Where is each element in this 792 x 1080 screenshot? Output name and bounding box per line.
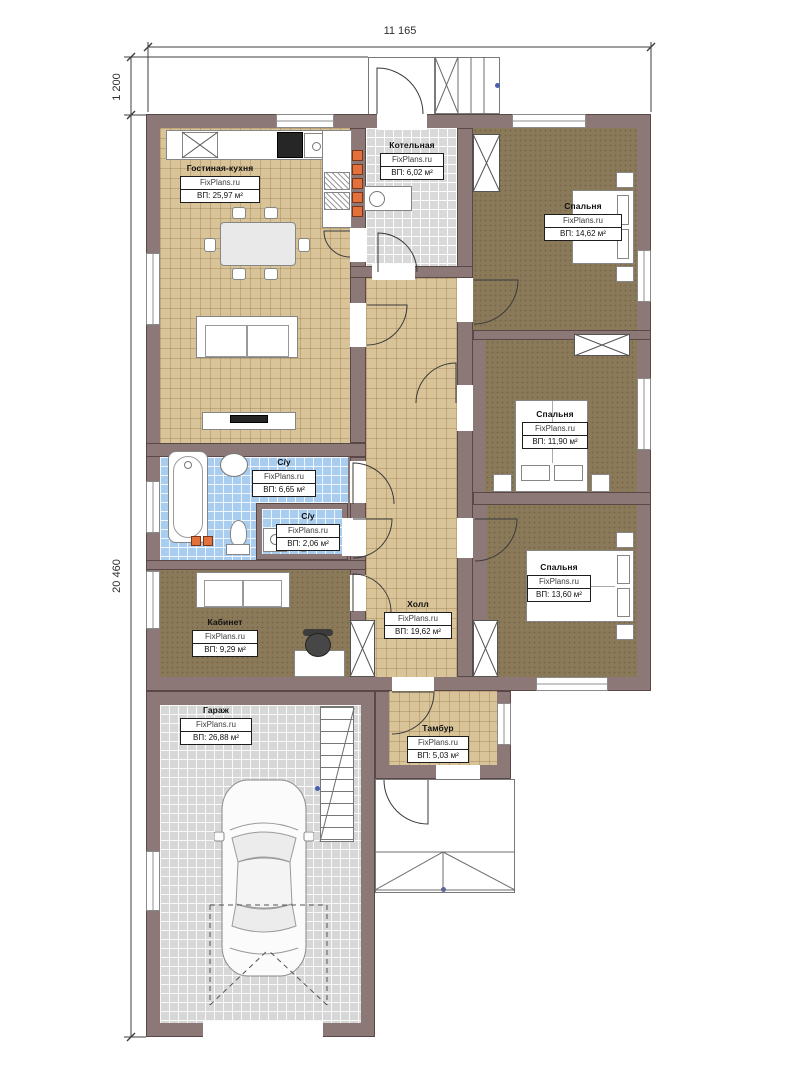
opening-bedroom-2 (457, 385, 473, 431)
opening-boiler-hall (372, 264, 415, 280)
marker-dot (441, 887, 446, 892)
opening-bedroom-3 (457, 518, 473, 558)
nightstand (493, 474, 512, 492)
nightstand (616, 172, 634, 188)
floor-plan-canvas: Гостиная-кухня FixPlans.ru ВП: 25,97 м² … (0, 0, 792, 1080)
chair (232, 268, 246, 280)
window-bedroom-3 (536, 677, 608, 691)
pillow (617, 588, 630, 617)
watermark: FixPlans.ru (527, 575, 591, 589)
room-name: Гостиная-кухня (180, 164, 260, 174)
sofa-office (196, 572, 290, 608)
chair (204, 238, 216, 252)
washbasin (220, 453, 248, 477)
wall-bedroom2-bedroom3 (473, 492, 651, 505)
vent-shaft-icon (352, 178, 363, 189)
vent-shaft-icon (191, 536, 201, 546)
vent-shaft-icon (203, 536, 213, 546)
pillow (521, 465, 550, 481)
watermark: FixPlans.ru (180, 176, 260, 190)
watermark: FixPlans.ru (276, 524, 340, 538)
watermark: FixPlans.ru (192, 630, 258, 644)
burner-icon (312, 142, 321, 151)
dimension-width-top: 11 165 (365, 25, 435, 37)
tv-icon (230, 415, 268, 423)
window-garage (146, 851, 160, 911)
watermark: FixPlans.ru (522, 422, 588, 436)
room-label-boiler: Котельная FixPlans.ru ВП: 6,02 м² (380, 141, 444, 180)
room-area: ВП: 2,06 м² (276, 538, 340, 551)
opening-kitchen-boiler (350, 228, 366, 262)
vent-shaft-icon (352, 206, 363, 217)
room-name: Спальня (527, 563, 591, 573)
entry-porch-top (368, 57, 435, 115)
oven-icon (324, 172, 350, 190)
vent-shaft-icon (352, 150, 363, 161)
dimension-porch-depth: 1 200 (111, 65, 125, 109)
room-area: ВП: 19,62 м² (384, 626, 452, 639)
opening-office (350, 575, 366, 611)
microwave-icon (324, 192, 350, 210)
window-bathroom (146, 481, 160, 533)
watermark: FixPlans.ru (380, 153, 444, 167)
wardrobe-bedroom-2 (574, 334, 630, 356)
room-label-bedroom-1: Спальня FixPlans.ru ВП: 14,62 м² (544, 202, 622, 241)
watermark: FixPlans.ru (384, 612, 452, 626)
watermark: FixPlans.ru (252, 470, 316, 484)
opening-front-door (377, 112, 427, 130)
closet-hall-right (473, 620, 498, 677)
room-area: ВП: 5,03 м² (407, 750, 469, 763)
room-label-living-kitchen: Гостиная-кухня FixPlans.ru ВП: 25,97 м² (180, 164, 260, 203)
room-name: Гараж (180, 706, 252, 716)
room-name: Тамбур (407, 724, 469, 734)
opening-vestibule-exit (436, 765, 480, 779)
room-label-garage: Гараж FixPlans.ru ВП: 26,88 м² (180, 706, 252, 745)
sofa-living (196, 316, 298, 358)
room-area: ВП: 13,60 м² (527, 589, 591, 602)
dining-table (220, 222, 296, 266)
window-living (146, 253, 160, 325)
window-office (146, 571, 160, 629)
room-label-wc: С/у FixPlans.ru ВП: 2,06 м² (276, 512, 340, 551)
room-area: ВП: 11,90 м² (522, 436, 588, 449)
chair (232, 207, 246, 219)
room-name: С/у (276, 512, 340, 522)
opening-garage-door (203, 1021, 323, 1037)
nightstand (616, 266, 634, 282)
dimension-height-left: 20 460 (111, 554, 125, 598)
nightstand (616, 624, 634, 640)
office-chair (305, 633, 331, 657)
watermark: FixPlans.ru (180, 718, 252, 732)
opening-wc (342, 518, 366, 556)
nightstand (591, 474, 610, 492)
room-area: ВП: 26,88 м² (180, 732, 252, 745)
opening-living-hall (350, 303, 366, 347)
room-label-vestibule: Тамбур FixPlans.ru ВП: 5,03 м² (407, 724, 469, 763)
boiler-unit (364, 186, 412, 211)
room-label-bathroom: С/у FixPlans.ru ВП: 6,65 м² (252, 458, 316, 497)
window-bedroom-1-right (637, 250, 651, 302)
wall-bathroom-office (146, 560, 366, 570)
room-name: Кабинет (192, 618, 258, 628)
room-name: Спальня (522, 410, 588, 420)
room-area: ВП: 6,65 м² (252, 484, 316, 497)
room-label-office: Кабинет FixPlans.ru ВП: 9,29 м² (192, 618, 258, 657)
toilet-tank (226, 544, 250, 555)
room-label-hall: Холл FixPlans.ru ВП: 19,62 м² (384, 600, 452, 639)
closet-hall-left (350, 620, 375, 677)
room-label-bedroom-2: Спальня FixPlans.ru ВП: 11,90 м² (522, 410, 588, 449)
chair (264, 268, 278, 280)
vent-shaft-icon (352, 164, 363, 175)
marker-dot (315, 786, 320, 791)
opening-hall-vestibule (392, 677, 434, 691)
room-name: С/у (252, 458, 316, 468)
watermark: FixPlans.ru (407, 736, 469, 750)
chair (298, 238, 310, 252)
marker-dot (495, 83, 500, 88)
wardrobe-bedroom-1 (473, 134, 500, 192)
drain-icon (184, 461, 192, 469)
opening-bedroom-1 (457, 278, 473, 322)
wall-living-corridor (350, 128, 366, 443)
chair (264, 207, 278, 219)
room-name: Спальня (544, 202, 622, 212)
room-area: ВП: 6,02 м² (380, 167, 444, 180)
pillow (617, 555, 630, 584)
window-bedroom-2 (637, 378, 651, 450)
opening-bathroom (350, 461, 366, 503)
kitchen-hob (182, 132, 218, 158)
room-label-bedroom-3: Спальня FixPlans.ru ВП: 13,60 м² (527, 563, 591, 602)
watermark: FixPlans.ru (544, 214, 622, 228)
room-name: Котельная (380, 141, 444, 151)
attic-ladder (320, 706, 354, 842)
entry-stairs-top (435, 57, 500, 114)
room-name: Холл (384, 600, 452, 610)
bathtub (168, 451, 208, 543)
pillow (554, 465, 583, 481)
window-bedroom-1-top (512, 114, 586, 128)
kitchen-sink (277, 132, 303, 158)
nightstand (616, 532, 634, 548)
room-area: ВП: 14,62 м² (544, 228, 622, 241)
window-vestibule (497, 703, 511, 745)
toilet-bowl (230, 520, 247, 546)
entry-porch-bottom (375, 779, 515, 893)
room-area: ВП: 9,29 м² (192, 644, 258, 657)
boiler-icon (369, 191, 385, 207)
vent-shaft-icon (352, 192, 363, 203)
window-kitchen (276, 114, 334, 128)
room-area: ВП: 25,97 м² (180, 190, 260, 203)
